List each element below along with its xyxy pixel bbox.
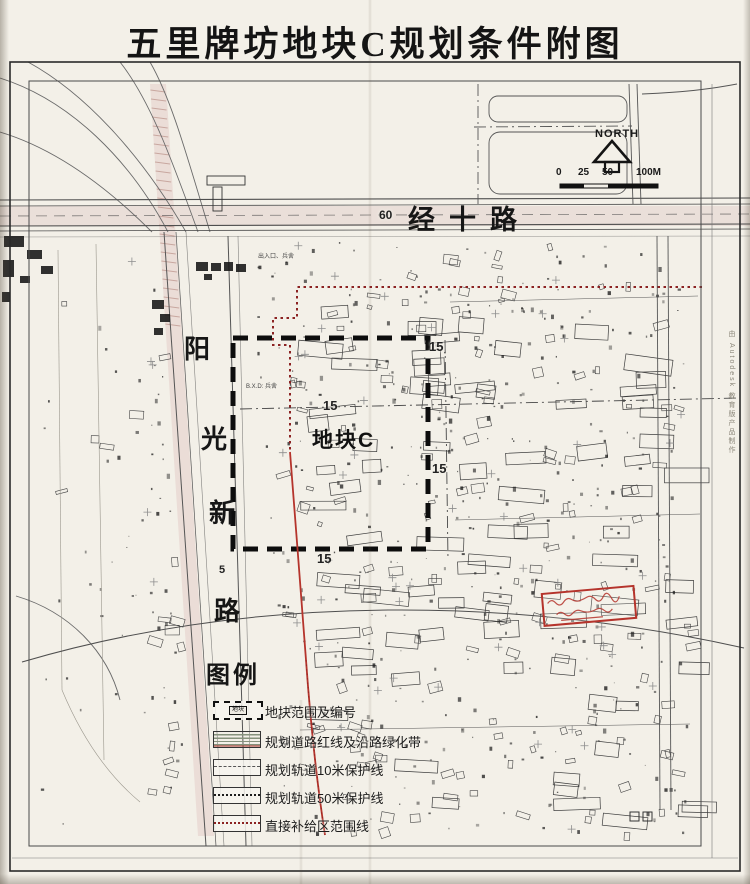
red-handwritten-stamp — [542, 586, 636, 626]
scale-tick-50: 50 — [602, 167, 613, 178]
road-label-yangguang: 路 — [214, 598, 240, 624]
railway-band — [150, 84, 214, 836]
legend-symbol-plot-boundary: 地块 — [213, 701, 263, 720]
legend-symbol-rail-10m — [213, 759, 261, 776]
legend-plot-chip: 地块 — [229, 706, 247, 715]
legend-item-label: 地块范围及编号 — [265, 702, 356, 721]
dim-15-south: 15 — [317, 551, 331, 566]
legend-symbol-supply-zone — [213, 815, 261, 832]
buildings-static — [2, 176, 652, 821]
legend-item-label: 直接补给区范围线 — [265, 816, 369, 835]
plot-c-label: 地块C — [312, 424, 375, 454]
watermark-text: 由 Autodesk 教育版产品制作 — [726, 330, 736, 455]
legend-title: 图例 — [206, 655, 260, 690]
road-label-yangguang: 阳 — [184, 336, 210, 362]
note-barracks: B.X.D: 兵舍 — [246, 381, 277, 390]
note-entrance: 出入口、兵舍 — [258, 251, 294, 260]
road-label-yangguang: 新 — [209, 500, 235, 526]
scale-tick-25: 25 — [578, 167, 589, 178]
dim-15-ne: 15 — [429, 339, 443, 354]
legend-symbol-rail-50m — [213, 787, 261, 804]
road-width-60: 60 — [379, 208, 392, 222]
road-label-yangguang: 光 — [201, 426, 227, 452]
scale-bar — [560, 184, 658, 188]
scanned-plan-sheet: 五里牌坊地块C规划条件附图 经十路 60 阳 光 新 路 地块C 15 15 1… — [0, 0, 750, 884]
north-label: NORTH — [595, 128, 639, 140]
scale-tick-100m: 100M — [636, 167, 661, 178]
legend-item-label: 规划轨道50米保护线 — [265, 788, 383, 807]
scale-tick-0: 0 — [556, 167, 562, 178]
dim-15-top: 15 — [323, 398, 337, 413]
cadastral-noise — [41, 90, 717, 841]
legend-item-label: 规划道路红线及沿路绿化带 — [265, 732, 421, 751]
dim-5-west: 5 — [219, 564, 225, 576]
page-title: 五里牌坊地块C规划条件附图 — [0, 16, 750, 67]
legend-item-label: 规划轨道10米保护线 — [265, 760, 383, 779]
dim-15-east: 15 — [432, 461, 446, 476]
legend-symbol-road-redline — [213, 731, 261, 748]
road-label-jingshi: 经十路 — [408, 198, 531, 237]
